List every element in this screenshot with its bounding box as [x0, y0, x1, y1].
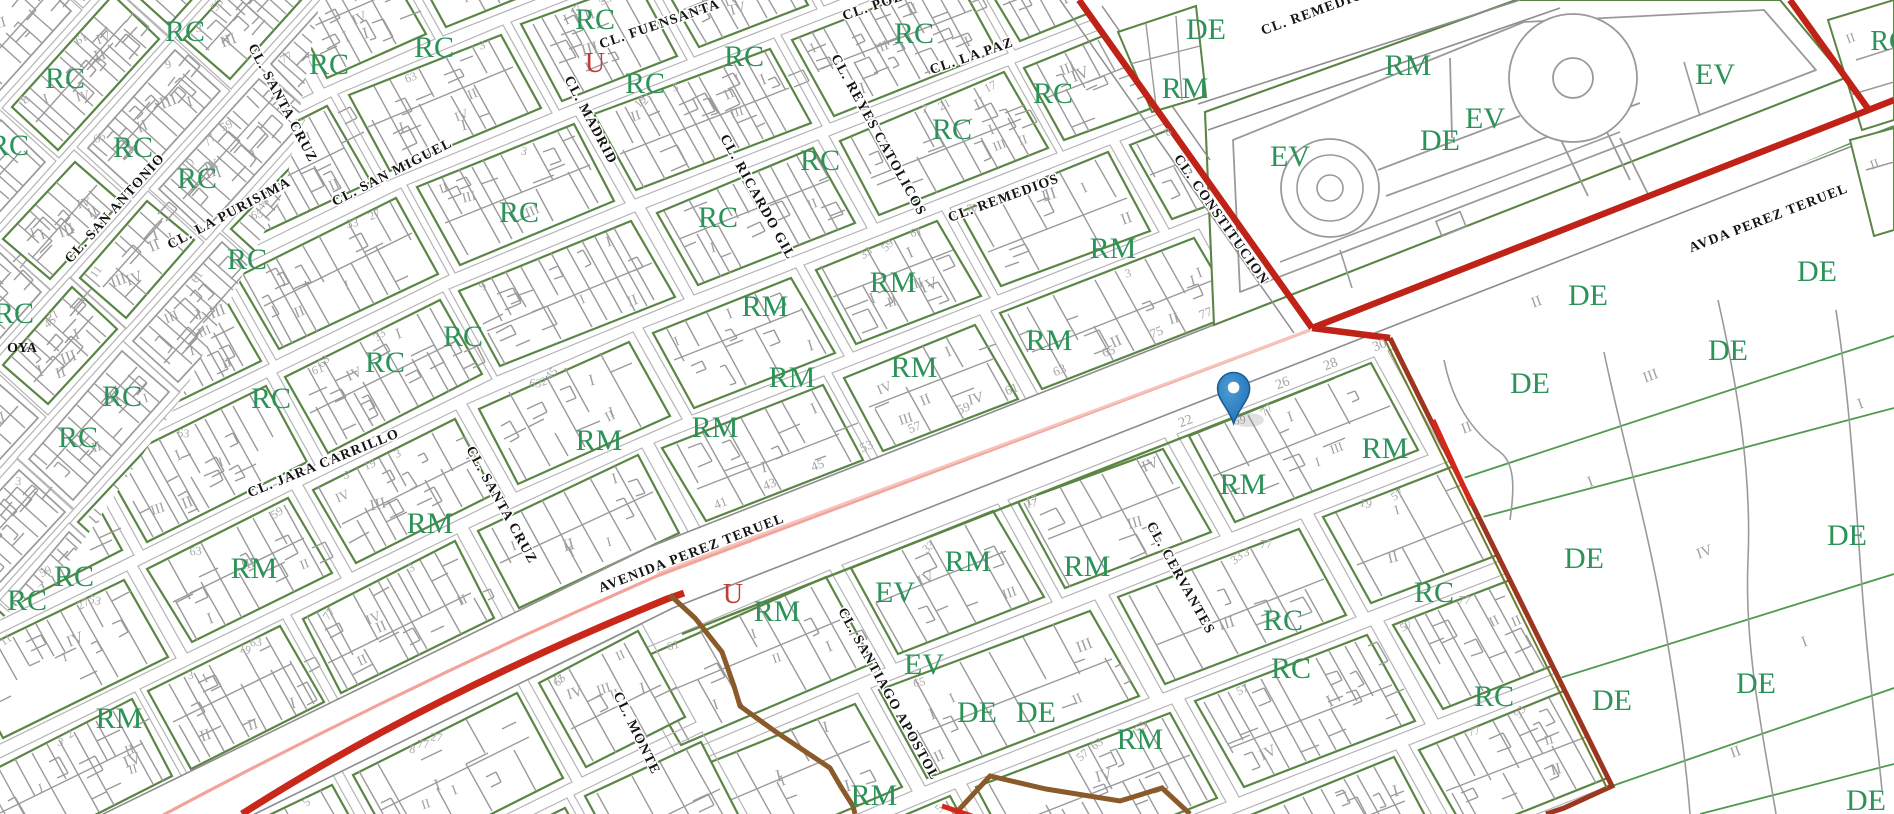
svg-text:RC: RC [58, 421, 98, 454]
svg-text:RC: RC [7, 584, 47, 617]
svg-text:RC: RC [309, 48, 349, 81]
svg-text:RC: RC [45, 62, 85, 95]
svg-text:RM: RM [851, 779, 898, 812]
svg-text:RM: RM [769, 361, 816, 394]
svg-text:RM: RM [231, 552, 278, 585]
svg-text:DE: DE [1736, 667, 1776, 700]
svg-text:RM: RM [1385, 49, 1432, 82]
svg-text:EV: EV [1465, 102, 1505, 135]
svg-text:DE: DE [957, 696, 997, 729]
svg-text:RC: RC [1474, 680, 1514, 713]
svg-text:RM: RM [1026, 324, 1073, 357]
svg-text:RC: RC [227, 243, 267, 276]
svg-text:RC: RC [0, 297, 34, 330]
svg-text:RC: RC [177, 162, 217, 195]
svg-text:OYA: OYA [7, 341, 38, 356]
svg-text:RC: RC [113, 131, 153, 164]
svg-text:RC: RC [102, 380, 142, 413]
svg-text:DE: DE [1592, 684, 1632, 717]
svg-text:63: 63 [189, 543, 202, 558]
svg-text:RM: RM [692, 411, 739, 444]
svg-text:RC: RC [800, 144, 840, 177]
svg-text:RC: RC [414, 31, 454, 64]
svg-text:RC: RC [54, 560, 94, 593]
svg-text:RM: RM [1117, 723, 1164, 756]
svg-text:U: U [585, 48, 605, 79]
svg-text:RM: RM [1064, 550, 1111, 583]
svg-text:RC: RC [443, 320, 483, 353]
svg-text:DE: DE [1846, 784, 1886, 814]
svg-text:RC: RC [698, 201, 738, 234]
svg-text:RC: RC [499, 196, 539, 229]
svg-text:63: 63 [529, 375, 542, 390]
svg-text:RM: RM [870, 266, 917, 299]
svg-text:RM: RM [1220, 468, 1267, 501]
svg-text:RC: RC [251, 382, 291, 415]
svg-text:DE: DE [1568, 279, 1608, 312]
svg-text:17: 17 [1024, 495, 1038, 511]
svg-text:RM: RM [754, 595, 801, 628]
svg-text:RM: RM [945, 545, 992, 578]
svg-text:RC: RC [894, 17, 934, 50]
svg-text:RC: RC [1271, 652, 1311, 685]
svg-text:77: 77 [1458, 593, 1471, 608]
svg-text:U: U [723, 579, 743, 610]
svg-text:RM: RM [1090, 232, 1137, 265]
svg-text:DE: DE [1797, 255, 1837, 288]
svg-text:63: 63 [177, 425, 190, 440]
svg-text:EV: EV [904, 648, 944, 681]
svg-text:RM: RM [742, 290, 789, 323]
svg-text:RC: RC [625, 67, 665, 100]
svg-text:RC: RC [1414, 576, 1454, 609]
svg-text:RM: RM [891, 351, 938, 384]
svg-text:77: 77 [417, 737, 429, 751]
svg-text:EV: EV [875, 576, 915, 609]
svg-text:63: 63 [249, 635, 262, 650]
svg-text:77: 77 [1260, 537, 1272, 551]
svg-text:RC: RC [575, 3, 615, 36]
svg-text:RM: RM [407, 507, 454, 540]
svg-text:RC: RC [1033, 77, 1073, 110]
svg-text:DE: DE [1564, 542, 1604, 575]
svg-text:RM: RM [1162, 72, 1209, 105]
svg-text:33: 33 [345, 215, 359, 231]
svg-text:EV: EV [1695, 58, 1735, 91]
svg-text:DE: DE [1708, 334, 1748, 367]
svg-text:RM: RM [96, 702, 143, 735]
svg-text:RC: RC [165, 15, 205, 48]
svg-text:DE: DE [1510, 367, 1550, 400]
svg-text:RC: RC [0, 129, 29, 162]
svg-text:RC: RC [365, 346, 405, 379]
svg-text:DE: DE [1016, 696, 1056, 729]
svg-text:RC: RC [932, 113, 972, 146]
svg-text:RC: RC [1870, 26, 1894, 57]
svg-text:RM: RM [1362, 432, 1409, 465]
svg-text:DE: DE [1827, 519, 1867, 552]
svg-text:7: 7 [921, 102, 928, 116]
svg-text:27: 27 [430, 729, 443, 744]
svg-text:EV: EV [1270, 140, 1310, 173]
svg-text:DE: DE [1186, 13, 1226, 46]
svg-text:8: 8 [409, 742, 416, 756]
svg-text:RC: RC [724, 40, 764, 73]
svg-text:3: 3 [15, 474, 22, 488]
svg-text:DE: DE [1420, 124, 1460, 157]
svg-text:RM: RM [576, 424, 623, 457]
svg-text:RC: RC [1263, 604, 1303, 637]
